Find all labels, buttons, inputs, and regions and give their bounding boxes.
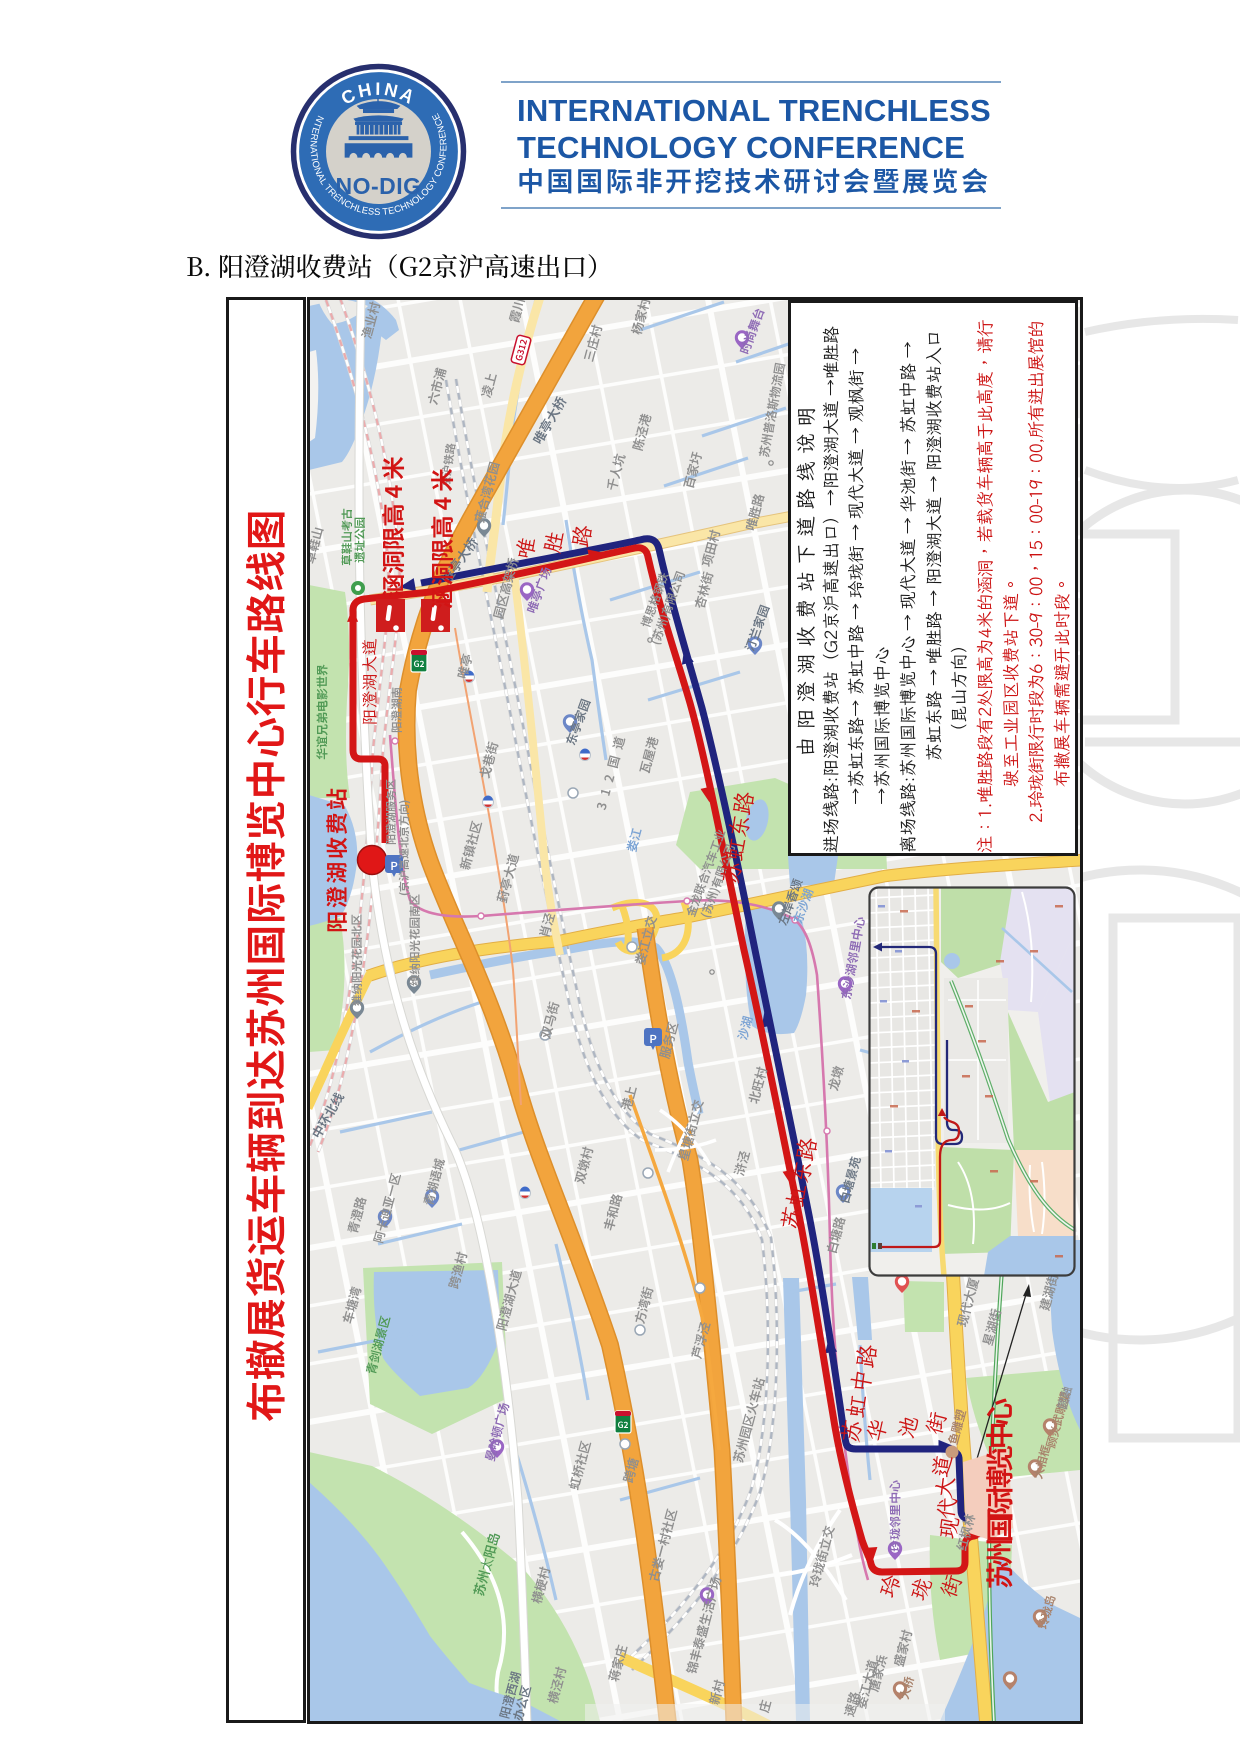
svg-text:维纳阳光花园南区: 维纳阳光花园南区 <box>407 894 423 986</box>
svg-text:大: 大 <box>358 656 381 673</box>
svg-text:4: 4 <box>375 485 409 499</box>
svg-text:4: 4 <box>424 497 458 511</box>
svg-text:G2: G2 <box>414 658 425 670</box>
svg-text:澄: 澄 <box>358 691 381 708</box>
svg-text:遗址公园: 遗址公园 <box>352 517 368 563</box>
svg-text:米: 米 <box>424 468 458 492</box>
svg-text:G2: G2 <box>618 1419 629 1431</box>
svg-text:涵: 涵 <box>424 586 458 610</box>
svg-text:玲珑邻里中心: 玲珑邻里中心 <box>887 1480 904 1552</box>
svg-text:阳: 阳 <box>358 709 381 726</box>
svg-text:湖: 湖 <box>320 862 352 884</box>
svg-text:限: 限 <box>375 527 409 551</box>
svg-text:费: 费 <box>320 813 352 835</box>
svg-text:道: 道 <box>358 639 381 656</box>
svg-text:站: 站 <box>320 788 352 810</box>
svg-text:阳澄湖南: 阳澄湖南 <box>389 687 405 733</box>
svg-text:洞: 洞 <box>424 562 458 586</box>
svg-text:米: 米 <box>375 456 409 480</box>
svg-text:阳: 阳 <box>320 911 352 933</box>
svg-text:P: P <box>649 1031 656 1047</box>
svg-text:高: 高 <box>424 515 458 539</box>
svg-text:收: 收 <box>320 837 352 859</box>
svg-text:湖: 湖 <box>358 674 381 691</box>
svg-text:华谊兄弟电影世界: 华谊兄弟电影世界 <box>314 664 331 760</box>
svg-text:澄: 澄 <box>320 886 352 908</box>
svg-text:限: 限 <box>424 539 458 563</box>
svg-text:苏: 苏 <box>979 1561 1019 1589</box>
svg-text:阳澄湖服务区: 阳澄湖服务区 <box>383 779 399 845</box>
svg-text:高: 高 <box>375 503 409 527</box>
svg-text:涵: 涵 <box>375 574 409 598</box>
svg-text:洞: 洞 <box>375 550 409 574</box>
